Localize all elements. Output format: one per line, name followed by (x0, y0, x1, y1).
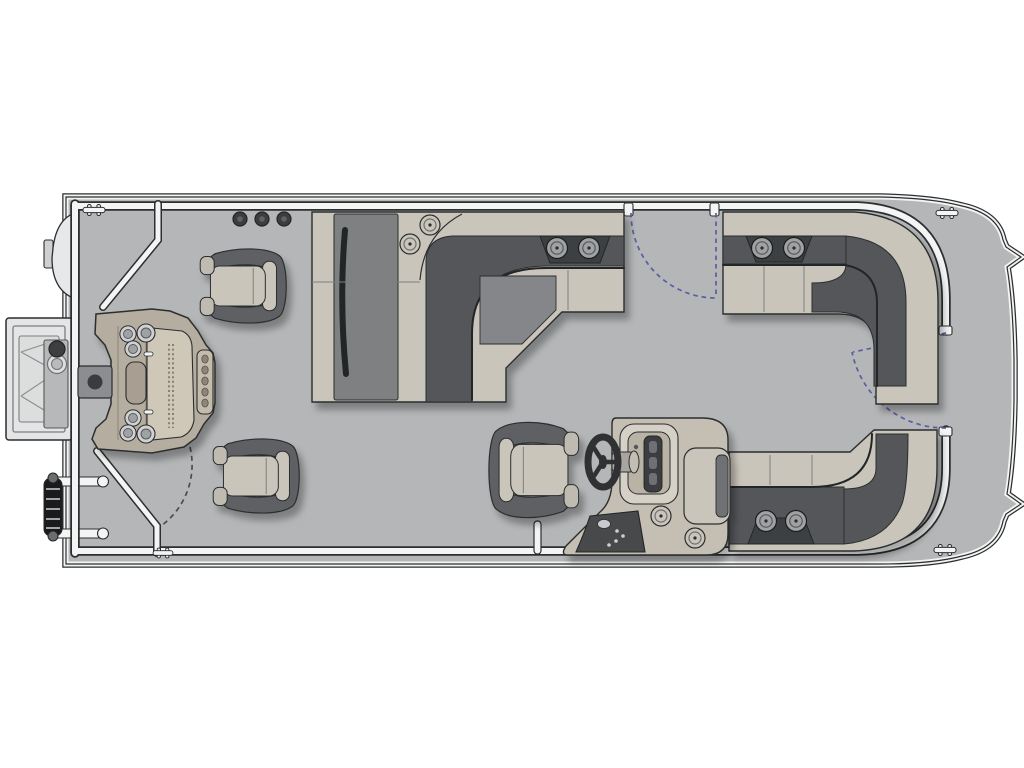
fishing-chair-port (213, 439, 299, 513)
trolling-pedal-pad (78, 366, 112, 398)
side-gate-post (534, 521, 541, 554)
helm-chair (489, 422, 579, 517)
motor-knob (49, 341, 65, 357)
floorplan-canvas (0, 0, 1024, 768)
station-handle-slot (126, 362, 146, 404)
rail-rod-holders (233, 212, 291, 226)
fishing-chair-starboard (200, 249, 286, 323)
motor-mount-frame (6, 318, 72, 440)
floorplan-page (0, 0, 1024, 768)
station-table (147, 328, 194, 440)
